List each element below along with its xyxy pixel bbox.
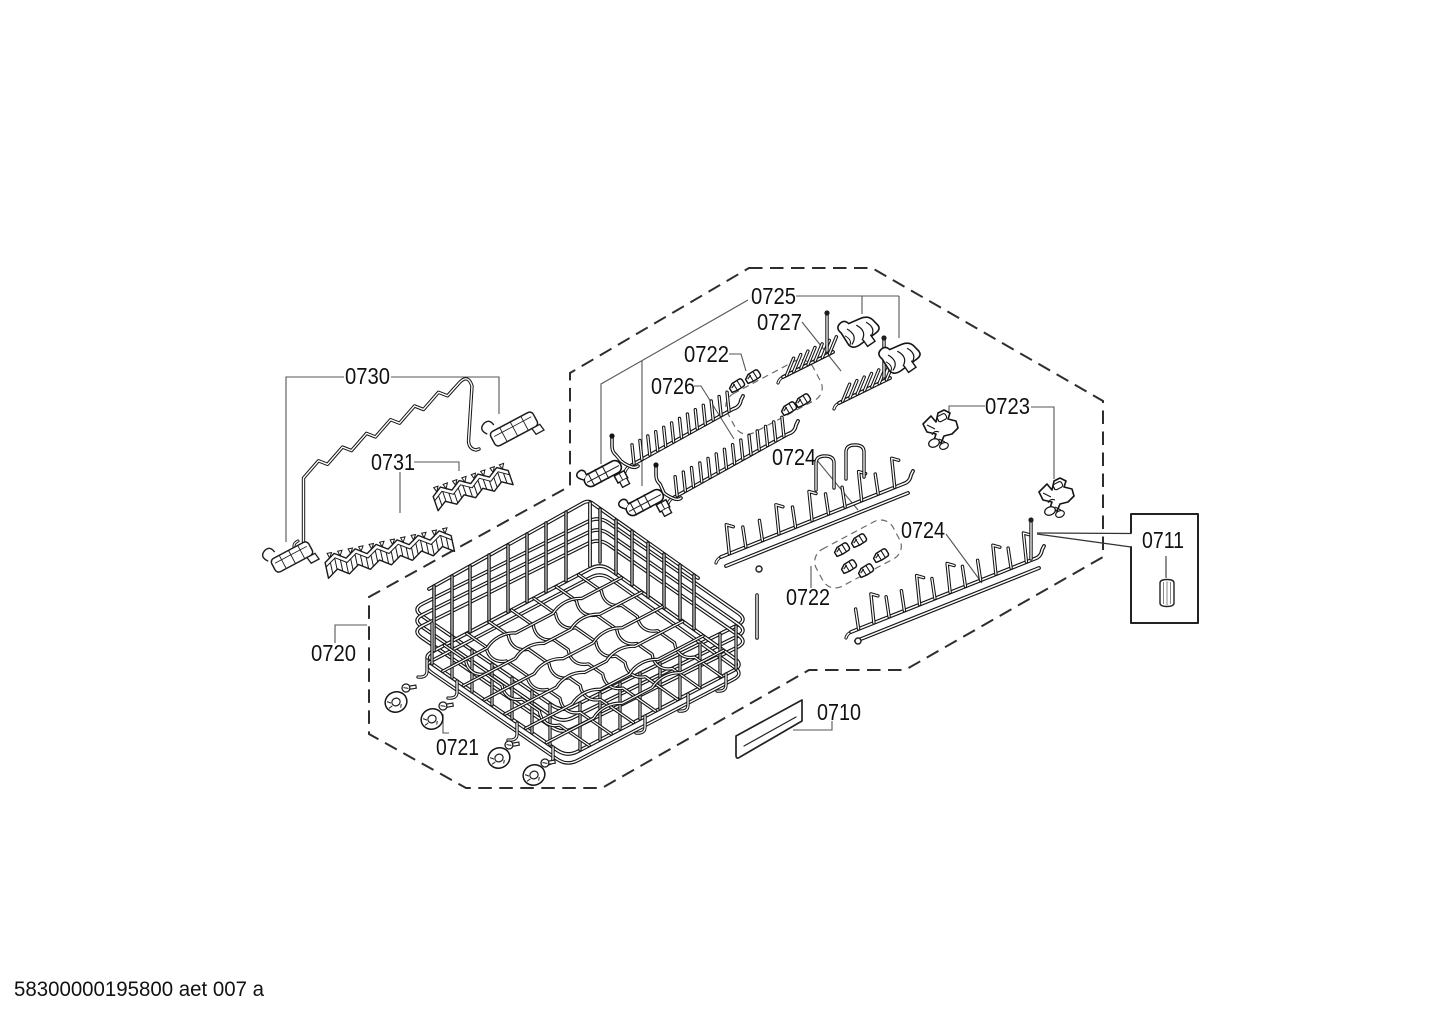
- svg-text:0730: 0730: [345, 363, 390, 389]
- svg-text:0724: 0724: [772, 444, 816, 470]
- svg-text:0731: 0731: [371, 449, 415, 475]
- svg-text:0710: 0710: [817, 699, 861, 725]
- svg-text:0721: 0721: [436, 734, 479, 760]
- svg-text:0722: 0722: [684, 341, 729, 367]
- svg-text:0711: 0711: [1142, 527, 1184, 553]
- svg-text:0727: 0727: [757, 309, 802, 335]
- svg-text:0725: 0725: [751, 283, 796, 309]
- svg-text:58300000195800 aet 007 a: 58300000195800 aet 007 a: [14, 977, 264, 1001]
- svg-text:0723: 0723: [985, 393, 1030, 419]
- svg-text:0720: 0720: [311, 640, 356, 666]
- svg-text:0724: 0724: [901, 517, 945, 543]
- svg-text:0722: 0722: [786, 584, 830, 610]
- svg-text:0726: 0726: [651, 373, 695, 399]
